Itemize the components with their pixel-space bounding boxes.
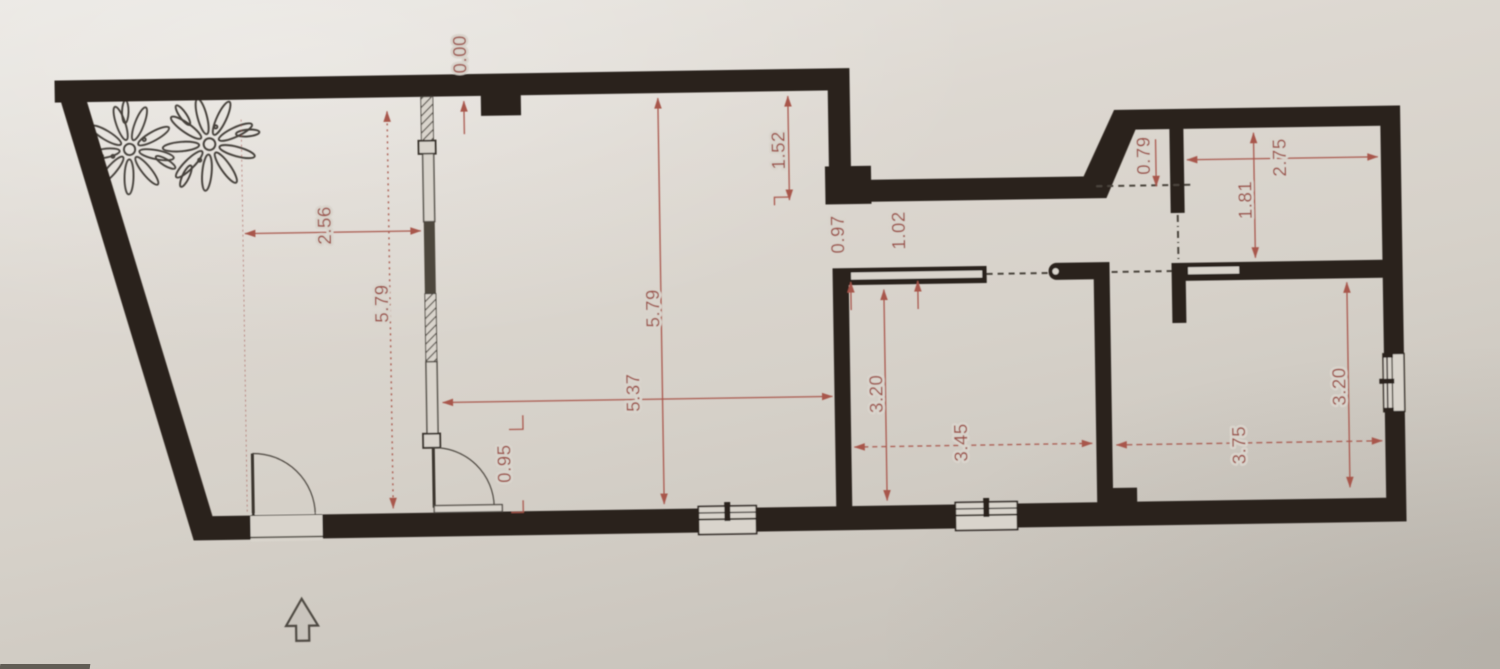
wall-middle-room-right <box>1093 262 1113 526</box>
dashed-opening-right-room <box>1112 271 1172 272</box>
dim-label-partition-door: 0.95 <box>493 444 515 483</box>
wall-living-right-upper <box>827 68 851 168</box>
dim-label-passage: 0.79 <box>1132 136 1154 175</box>
dim-label-terrace-length: 5.79 <box>371 284 393 323</box>
wall-step-bottom <box>1111 488 1137 502</box>
photo-edge-shadow <box>0 664 90 669</box>
dim-label-terrace-width: 2.56 <box>313 206 335 245</box>
partition-panel <box>426 362 438 434</box>
window-bottom-left <box>698 502 756 535</box>
floor-plan-drawing: 0.00 1.52 2.56 5.79 5.79 5.37 0.95 0.97 … <box>0 0 1500 669</box>
dim-label-right-room-depth: 3.20 <box>1328 367 1350 406</box>
exterior-wall-top-right <box>1114 105 1400 129</box>
floor-plan-photo: 0.00 1.52 2.56 5.79 5.79 5.37 0.95 0.97 … <box>0 0 1500 669</box>
dim-label-living-width: 5.37 <box>622 373 644 412</box>
wall-stub-upper <box>1169 129 1184 213</box>
extension-line-terrace <box>241 120 247 513</box>
sliding-panel-right-room <box>1188 266 1240 275</box>
window-right-wall <box>1379 353 1405 411</box>
exterior-wall-right <box>1380 105 1407 521</box>
dim-label-middle-room-depth: 3.20 <box>865 374 887 413</box>
partition-panel <box>423 154 435 222</box>
partition-post <box>418 141 435 154</box>
north-arrow-icon <box>286 599 319 641</box>
partition-door-leaf <box>433 448 434 508</box>
dim-label-recess: 1.52 <box>767 131 789 170</box>
entrance-door-leaf <box>252 454 253 516</box>
dim-line-datum <box>464 101 465 134</box>
sliding-panel-middle-room <box>851 270 983 280</box>
wall-pier <box>825 166 872 205</box>
wall-middle-room-left <box>833 268 853 530</box>
walls <box>54 59 1406 542</box>
dim-label-hall-b: 1.02 <box>888 211 910 250</box>
dim-bracket-door-bottom <box>511 500 523 512</box>
partition-hatched-segment <box>421 97 434 141</box>
dim-label-middle-room-width: 3.45 <box>950 423 972 462</box>
partition-door-swing <box>433 447 494 508</box>
partition-post <box>423 434 440 448</box>
hall-wall <box>869 176 1090 201</box>
dim-label-right-room-width: 3.75 <box>1228 426 1250 465</box>
dim-label-datum: 0.00 <box>449 35 471 74</box>
partition-solid-segment <box>424 222 436 294</box>
wall-pilaster <box>481 95 521 116</box>
dim-bracket-door-top <box>509 415 523 429</box>
dim-label-hall-a: 0.97 <box>827 215 849 254</box>
dim-bracket <box>774 197 788 205</box>
dim-label-upper-right-depth: 1.81 <box>1234 181 1256 220</box>
glass-partition <box>418 97 441 448</box>
entrance-door-swing <box>252 453 315 516</box>
dim-line-middle-room-width <box>854 443 1092 447</box>
dashed-opening-middle-room <box>987 273 1049 274</box>
partition-hatched-segment <box>425 294 437 362</box>
dash-dot-opening <box>1178 215 1179 261</box>
dimension-lines <box>243 87 1383 517</box>
partition-door-threshold <box>434 505 502 513</box>
dim-line-passage <box>1156 139 1157 186</box>
window-bottom-middle <box>955 498 1017 531</box>
dim-label-living-length: 5.79 <box>642 289 664 328</box>
dim-label-upper-right-width: 2.75 <box>1269 138 1291 177</box>
exterior-wall-bottom <box>193 497 1406 540</box>
